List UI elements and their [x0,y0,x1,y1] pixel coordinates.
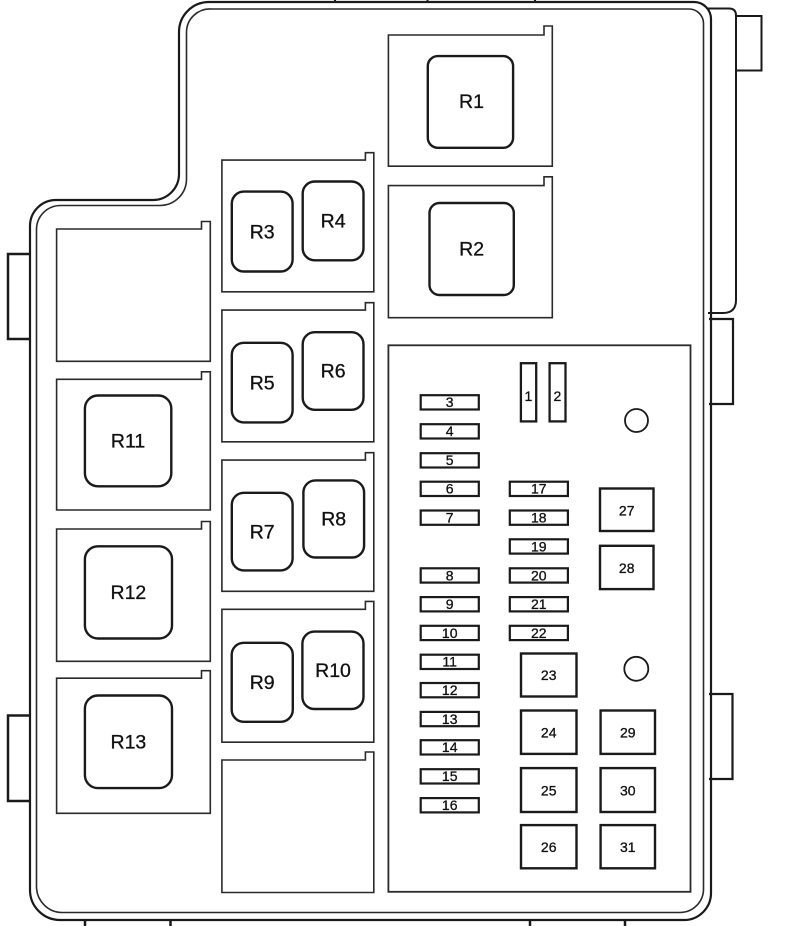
svg-text:R3: R3 [250,221,275,243]
svg-text:6: 6 [446,481,454,497]
svg-text:8: 8 [446,567,454,583]
svg-text:25: 25 [541,782,557,798]
svg-text:4: 4 [446,423,454,439]
svg-text:R7: R7 [250,521,275,543]
svg-text:21: 21 [531,596,547,612]
svg-text:15: 15 [442,768,458,784]
svg-text:18: 18 [531,510,547,526]
svg-text:14: 14 [442,739,458,755]
svg-text:R5: R5 [250,372,275,394]
svg-text:R6: R6 [321,361,346,383]
svg-text:R10: R10 [315,660,351,682]
svg-text:24: 24 [541,725,557,741]
svg-text:22: 22 [531,625,547,641]
svg-text:R2: R2 [459,239,484,261]
svg-text:R9: R9 [250,672,275,694]
svg-text:7: 7 [446,510,454,526]
svg-text:R8: R8 [321,509,346,531]
svg-text:R1: R1 [459,91,484,113]
svg-text:31: 31 [620,839,636,855]
svg-text:20: 20 [531,567,547,583]
svg-text:2: 2 [554,388,562,404]
svg-text:1: 1 [525,388,533,404]
svg-text:R4: R4 [321,211,346,233]
svg-text:9: 9 [446,596,454,612]
svg-text:27: 27 [619,503,635,519]
svg-text:23: 23 [541,667,557,683]
svg-text:11: 11 [442,654,457,670]
svg-text:3: 3 [446,394,454,410]
svg-text:R13: R13 [111,732,147,754]
svg-text:17: 17 [531,481,547,497]
svg-text:R11: R11 [111,431,145,453]
svg-text:10: 10 [442,625,458,641]
svg-text:29: 29 [620,725,636,741]
svg-text:R12: R12 [111,582,147,604]
svg-text:28: 28 [619,560,635,576]
svg-text:16: 16 [442,797,458,813]
svg-text:13: 13 [442,711,458,727]
svg-text:12: 12 [442,682,458,698]
svg-text:26: 26 [541,839,557,855]
svg-text:5: 5 [446,452,454,468]
svg-text:30: 30 [620,782,636,798]
svg-text:19: 19 [531,538,547,554]
